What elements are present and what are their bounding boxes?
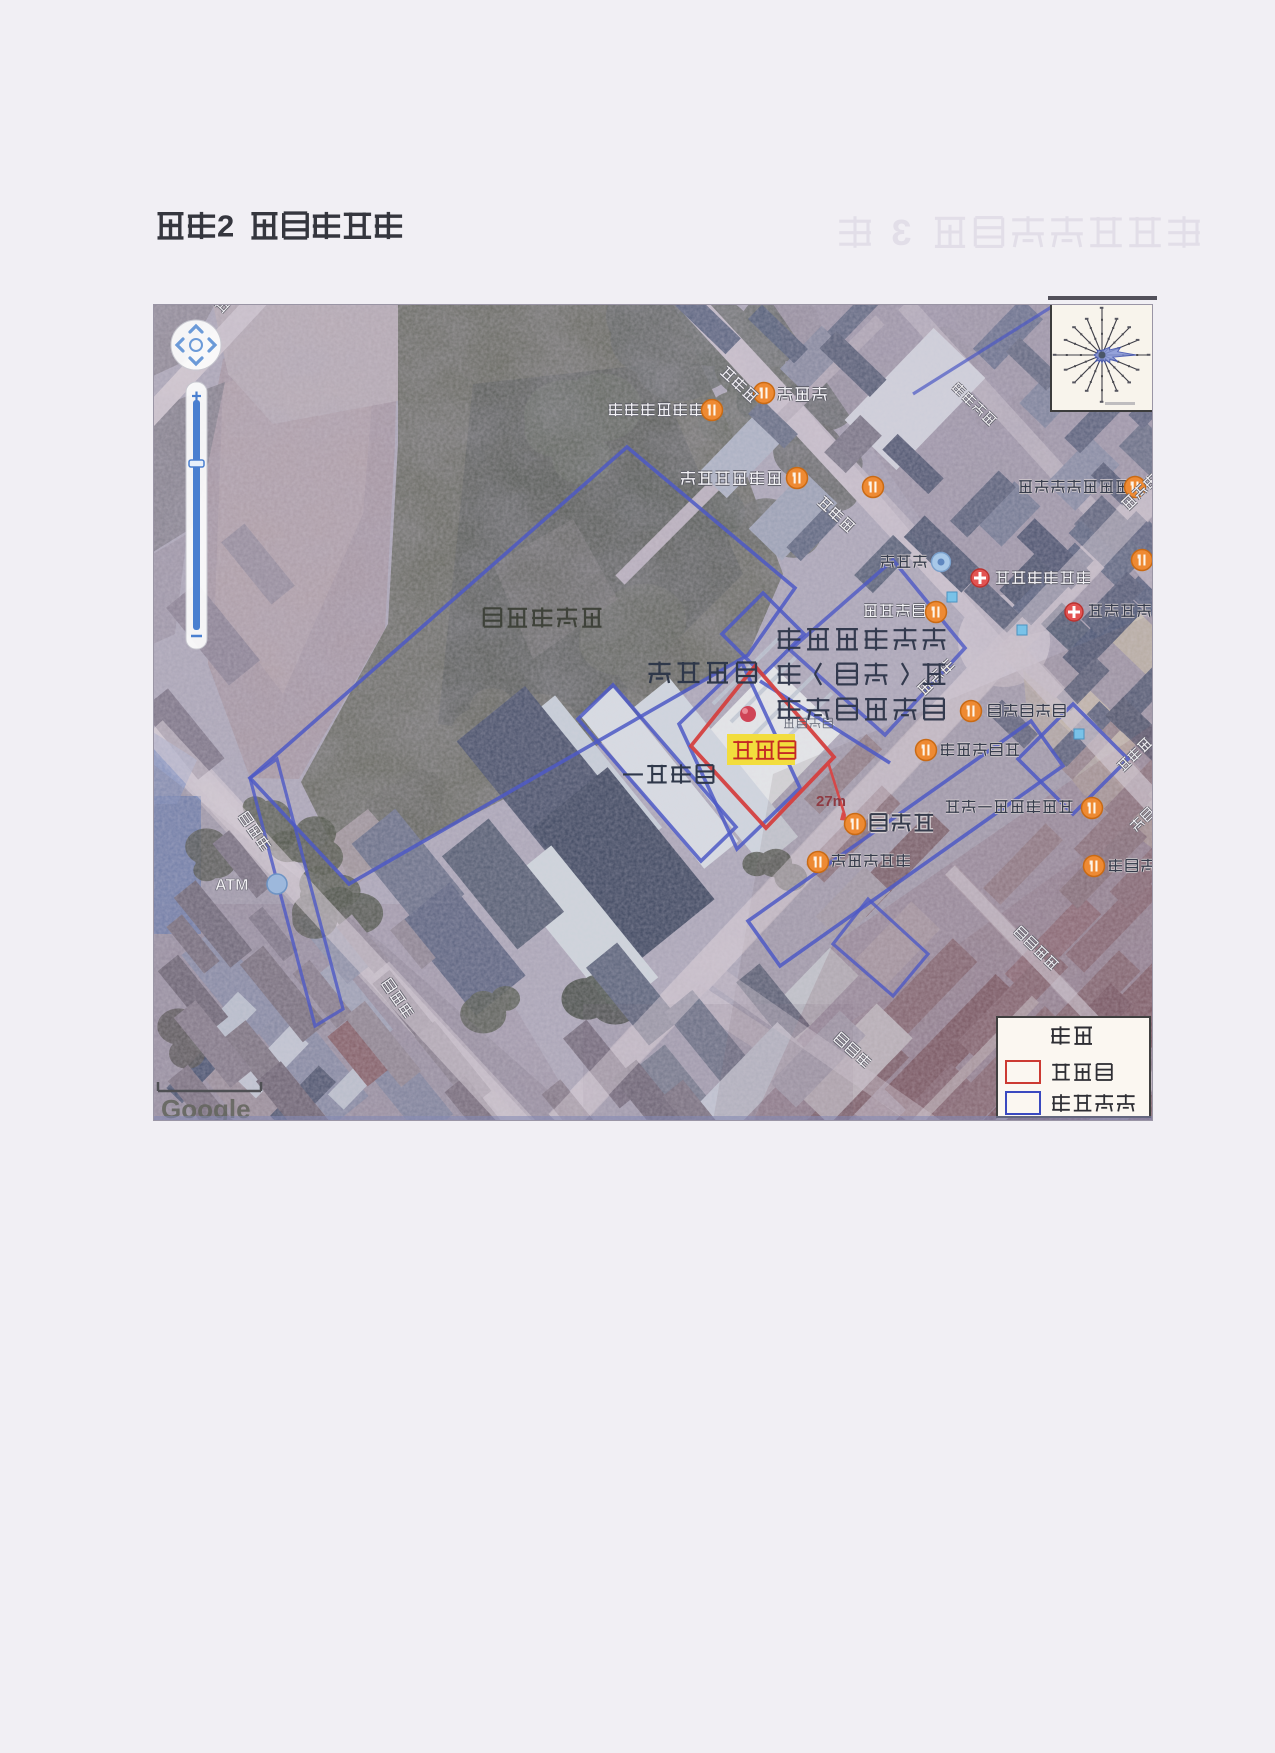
svg-text:27m: 27m <box>816 793 846 810</box>
svg-text:ATM: ATM <box>215 877 248 894</box>
svg-text:3: 3 <box>891 214 911 253</box>
svg-text:2: 2 <box>217 210 234 244</box>
